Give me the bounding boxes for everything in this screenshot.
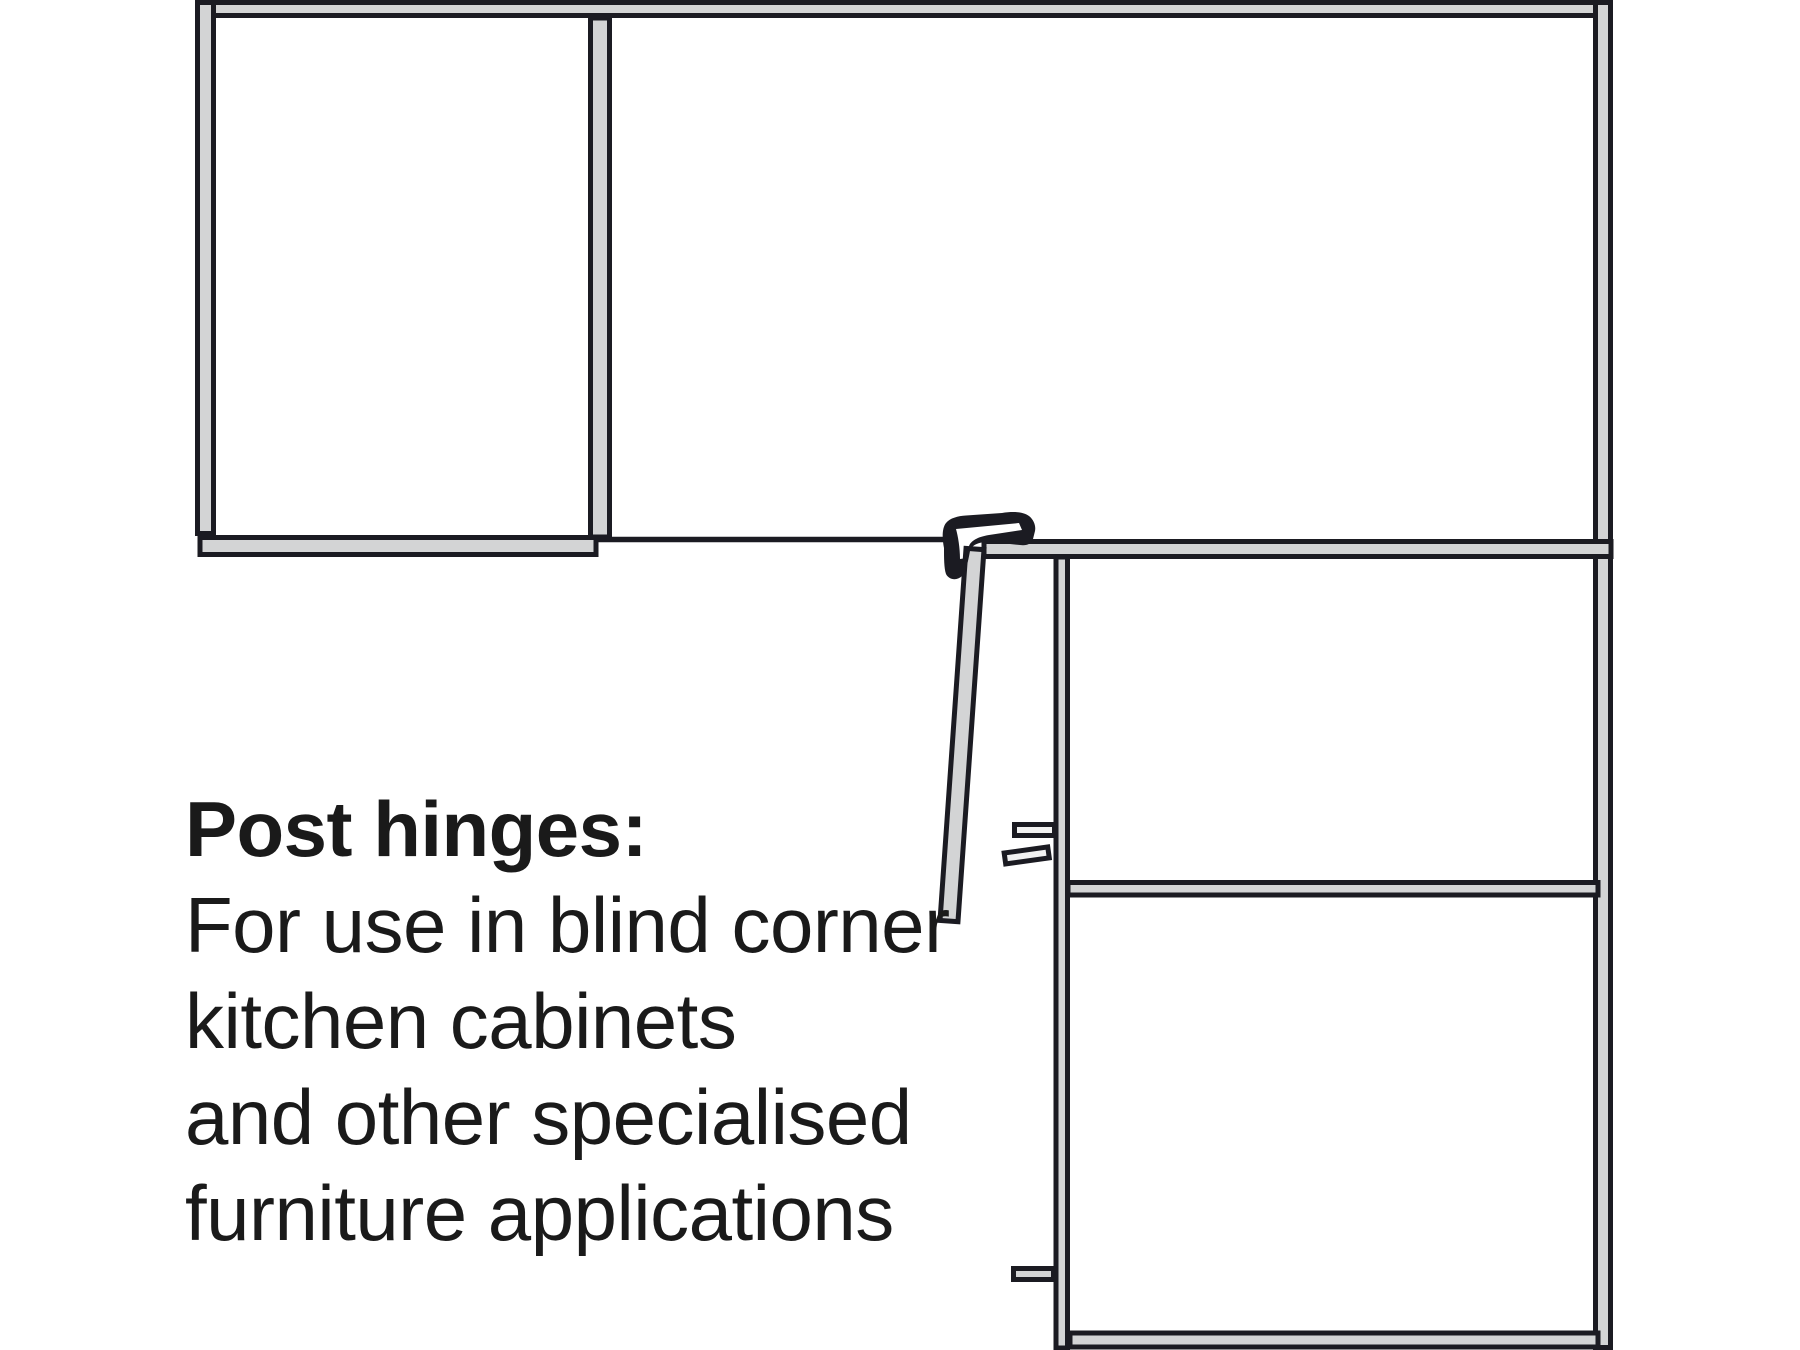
caption-title: Post hinges: [185, 781, 950, 877]
right-cabinet-left-wall [1056, 557, 1068, 1348]
hinge-arm-door [1004, 847, 1049, 864]
caption-line-1: For use in blind corner [185, 877, 950, 973]
right-cabinet-top-panel [984, 542, 1611, 557]
left-bottom-shelf [200, 538, 596, 555]
hinge-peg-bottom [1014, 1269, 1054, 1280]
caption-line-2: kitchen cabinets [185, 973, 950, 1069]
left-side-panel [198, 3, 214, 534]
page: Post hinges: For use in blind corner kit… [0, 0, 1800, 1350]
top-panel [198, 3, 1611, 16]
caption-line-3: and other specialised [185, 1069, 950, 1165]
right-side-panel [1596, 3, 1611, 1348]
right-cabinet-bottom-shelf [1070, 1333, 1598, 1347]
middle-divider-panel [591, 18, 610, 537]
hinge-arm-group [1004, 847, 1049, 864]
hinge-peg-wall [1015, 825, 1055, 836]
caption-block: Post hinges: For use in blind corner kit… [185, 781, 950, 1261]
right-cabinet-divider-shelf [1068, 883, 1598, 896]
caption-line-4: furniture applications [185, 1165, 950, 1261]
